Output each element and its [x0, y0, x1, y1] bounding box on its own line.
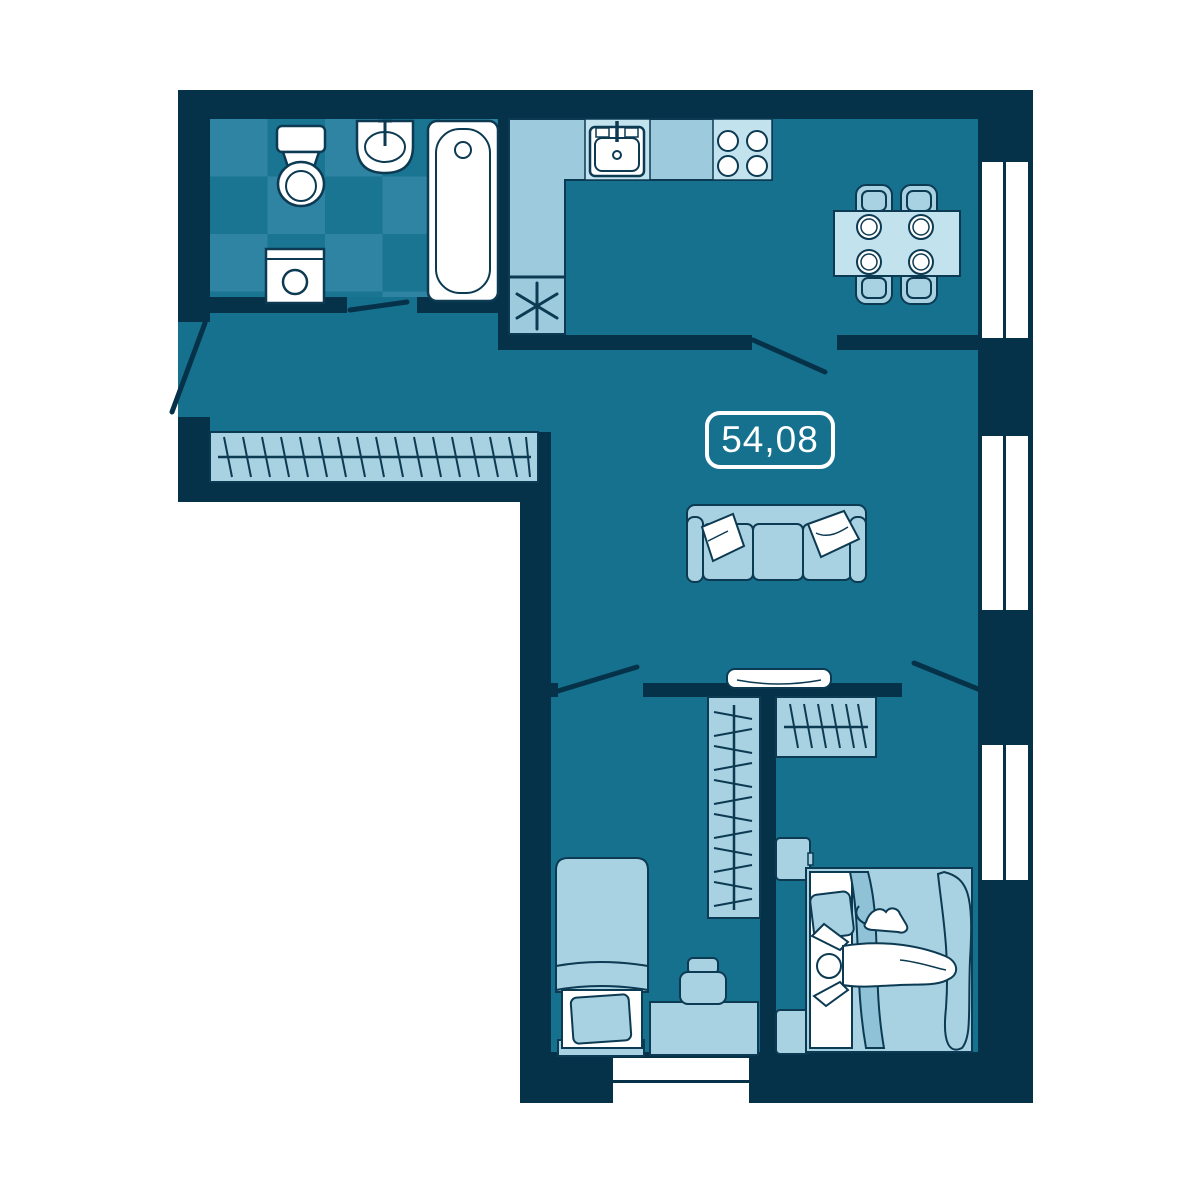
- kitchen-sink-icon: [590, 121, 644, 176]
- sofa-icon: [687, 505, 866, 582]
- bathroom-sink-icon: [357, 121, 413, 173]
- desk-icon: [650, 1002, 758, 1055]
- floor-plan-canvas: [0, 0, 1200, 1200]
- single-bed-icon: [556, 858, 648, 1056]
- area-label-text: 54,08: [721, 419, 819, 461]
- tv-icon: [727, 669, 831, 688]
- entrance-door-opening: [178, 322, 210, 417]
- hallway-living-floor: [210, 350, 978, 432]
- floor-plan: 54,08: [0, 0, 1200, 1200]
- dining-table-icon: [834, 211, 960, 276]
- hall-wardrobe-icon: [210, 432, 538, 482]
- hallway-floor: [210, 313, 498, 350]
- area-label: 54,08: [705, 411, 835, 469]
- bedroom-right-wardrobe-icon: [776, 697, 876, 757]
- washing-machine-icon: [266, 249, 324, 303]
- bedroom-left-wardrobe-icon: [708, 697, 760, 918]
- double-bed-icon: [806, 868, 972, 1052]
- bathtub-icon: [428, 121, 498, 301]
